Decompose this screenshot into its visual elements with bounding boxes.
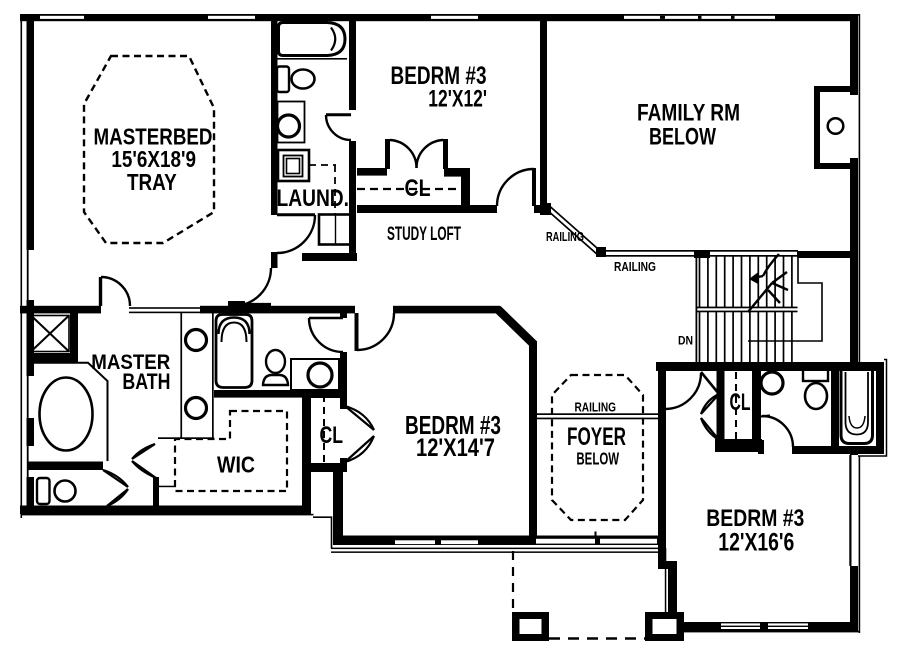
svg-text:12'X14'7: 12'X14'7 bbox=[416, 434, 495, 462]
svg-text:BELOW: BELOW bbox=[576, 449, 619, 469]
svg-text:FAMILY RM: FAMILY RM bbox=[637, 100, 740, 127]
svg-text:LAUND.: LAUND. bbox=[277, 185, 350, 212]
svg-text:FOYER: FOYER bbox=[567, 423, 626, 451]
svg-text:12'X12': 12'X12' bbox=[428, 86, 487, 113]
svg-text:WIC: WIC bbox=[217, 452, 255, 478]
svg-text:CL: CL bbox=[320, 422, 344, 449]
svg-text:RAILING: RAILING bbox=[614, 260, 656, 274]
svg-text:CL: CL bbox=[730, 389, 751, 416]
svg-text:TRAY: TRAY bbox=[127, 169, 177, 195]
svg-text:RAILING: RAILING bbox=[546, 230, 584, 244]
svg-text:CL: CL bbox=[405, 175, 431, 202]
svg-text:STUDY LOFT: STUDY LOFT bbox=[387, 223, 461, 245]
svg-text:RAILING: RAILING bbox=[575, 401, 617, 415]
svg-text:BATH: BATH bbox=[122, 369, 170, 394]
svg-text:BELOW: BELOW bbox=[649, 124, 716, 151]
svg-text:12'X16'6: 12'X16'6 bbox=[718, 529, 794, 557]
svg-text:DN: DN bbox=[678, 334, 693, 348]
